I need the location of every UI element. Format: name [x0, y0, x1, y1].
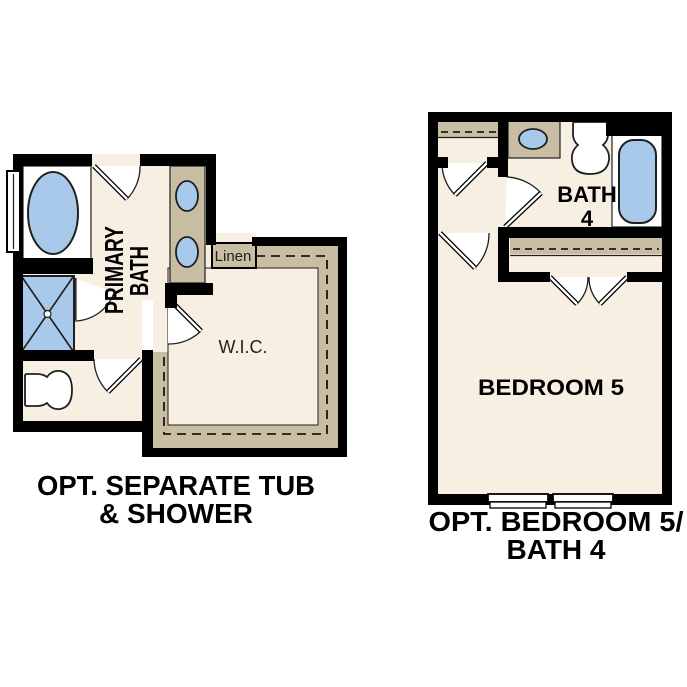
plan-left-caption-line1: OPT. SEPARATE TUB: [37, 470, 315, 501]
sink-basin: [519, 129, 547, 149]
bedroom-closet: [510, 238, 662, 256]
bathtub-fixture: [612, 135, 662, 227]
bedroom5-label: BEDROOM 5: [478, 375, 624, 400]
shower-fixture: [21, 276, 74, 352]
double-sink-vanity: [170, 166, 205, 283]
bath4-label-line2: 4: [581, 206, 594, 231]
plan-left-caption-line2: & SHOWER: [99, 498, 253, 529]
plan-right-caption-line2: BATH 4: [506, 534, 605, 565]
toilet-fixture: [572, 122, 609, 174]
floorplan-canvas: PRIMARY BATH Linen W.I.C. OPT. SEPARATE …: [0, 0, 687, 687]
sink-basin: [176, 181, 198, 211]
primary-bath-label-line2: BATH: [124, 246, 154, 296]
bathtub-fixture: [23, 166, 91, 260]
floorplan-image: PRIMARY BATH Linen W.I.C. OPT. SEPARATE …: [0, 0, 687, 687]
window: [7, 171, 20, 252]
wic-label: W.I.C.: [219, 337, 268, 357]
plan-right-caption-line1: OPT. BEDROOM 5/: [429, 506, 684, 537]
sink-basin: [176, 237, 198, 267]
bath4-label-line1: BATH: [557, 182, 616, 207]
plan-bedroom5-bath4: BATH 4 BEDROOM 5 OPT. BEDROOM 5/ BATH 4: [428, 112, 684, 565]
linen-label: Linen: [215, 248, 252, 265]
plan-separate-tub-shower: PRIMARY BATH Linen W.I.C. OPT. SEPARATE …: [7, 154, 347, 529]
hall-closet: [438, 120, 498, 138]
toilet-fixture: [25, 371, 72, 409]
sink-vanity: [508, 120, 560, 158]
